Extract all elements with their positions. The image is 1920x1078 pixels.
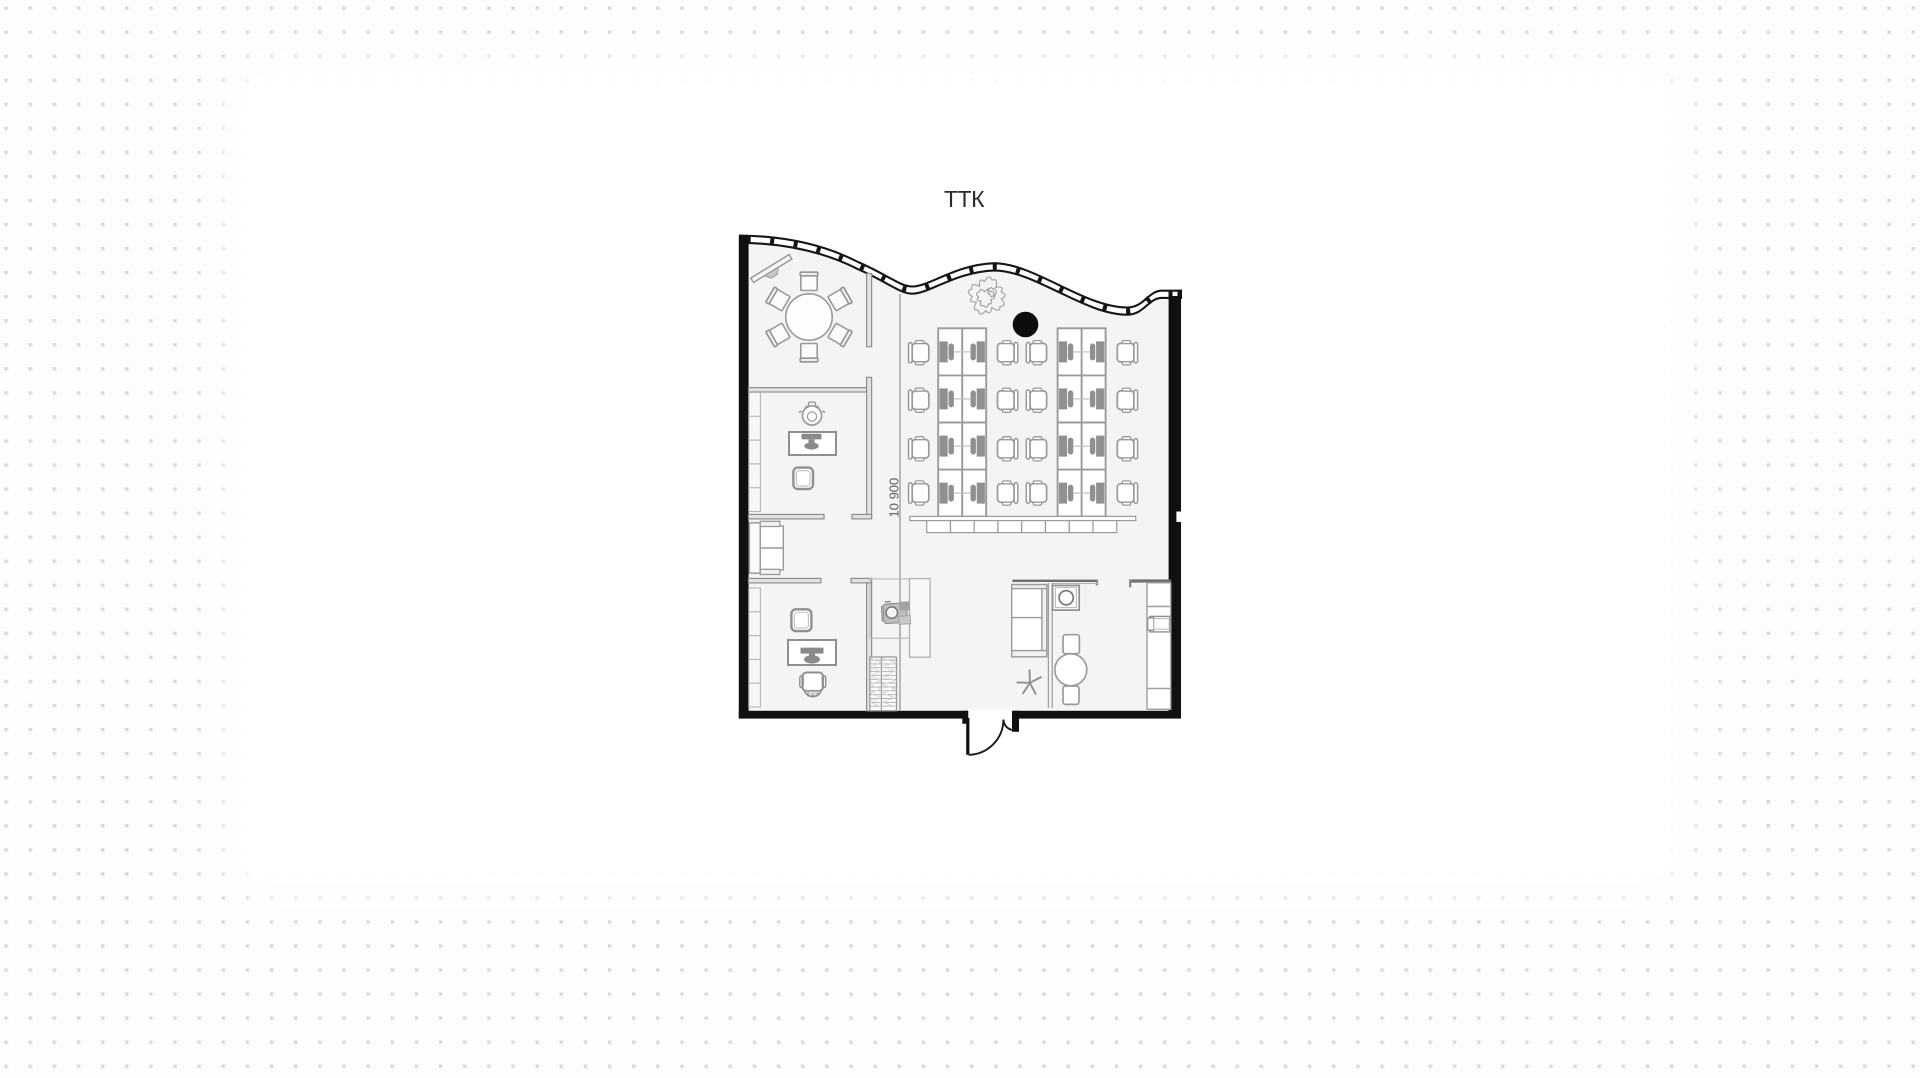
svg-text:ТТК: ТТК xyxy=(944,186,985,212)
svg-text:10 900: 10 900 xyxy=(887,478,902,518)
